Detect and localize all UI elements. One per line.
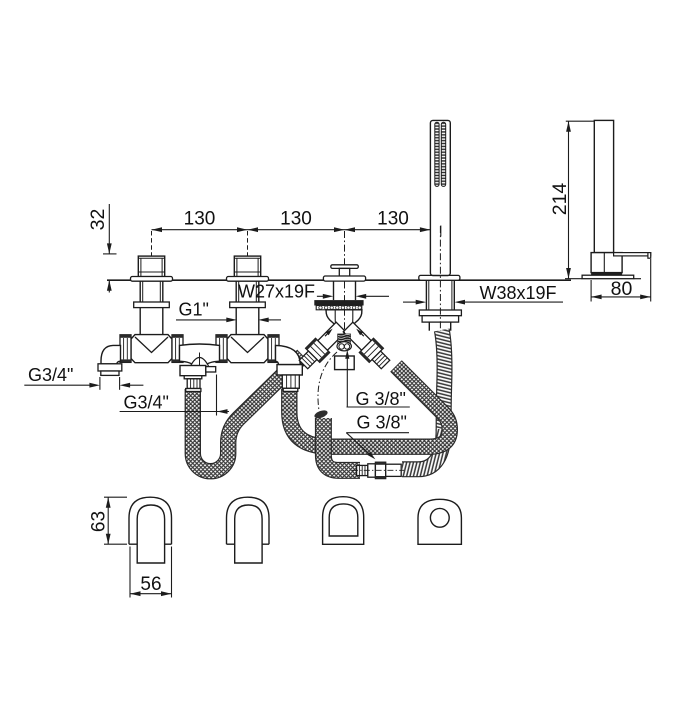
svg-text:W27x19F: W27x19F: [238, 281, 315, 301]
svg-text:130: 130: [280, 209, 312, 230]
svg-text:56: 56: [140, 574, 161, 595]
svg-text:214: 214: [549, 183, 571, 216]
svg-text:80: 80: [611, 278, 633, 300]
svg-text:130: 130: [377, 209, 409, 230]
svg-text:W38x19F: W38x19F: [480, 283, 557, 303]
svg-text:32: 32: [87, 209, 109, 231]
svg-text:G3/4": G3/4": [124, 393, 169, 413]
svg-text:130: 130: [184, 209, 216, 230]
svg-text:G3/4": G3/4": [28, 365, 73, 385]
svg-text:63: 63: [89, 511, 110, 532]
svg-text:G 3/8": G 3/8": [356, 389, 406, 409]
svg-text:G 3/8": G 3/8": [357, 413, 407, 433]
svg-text:G1": G1": [179, 300, 209, 320]
